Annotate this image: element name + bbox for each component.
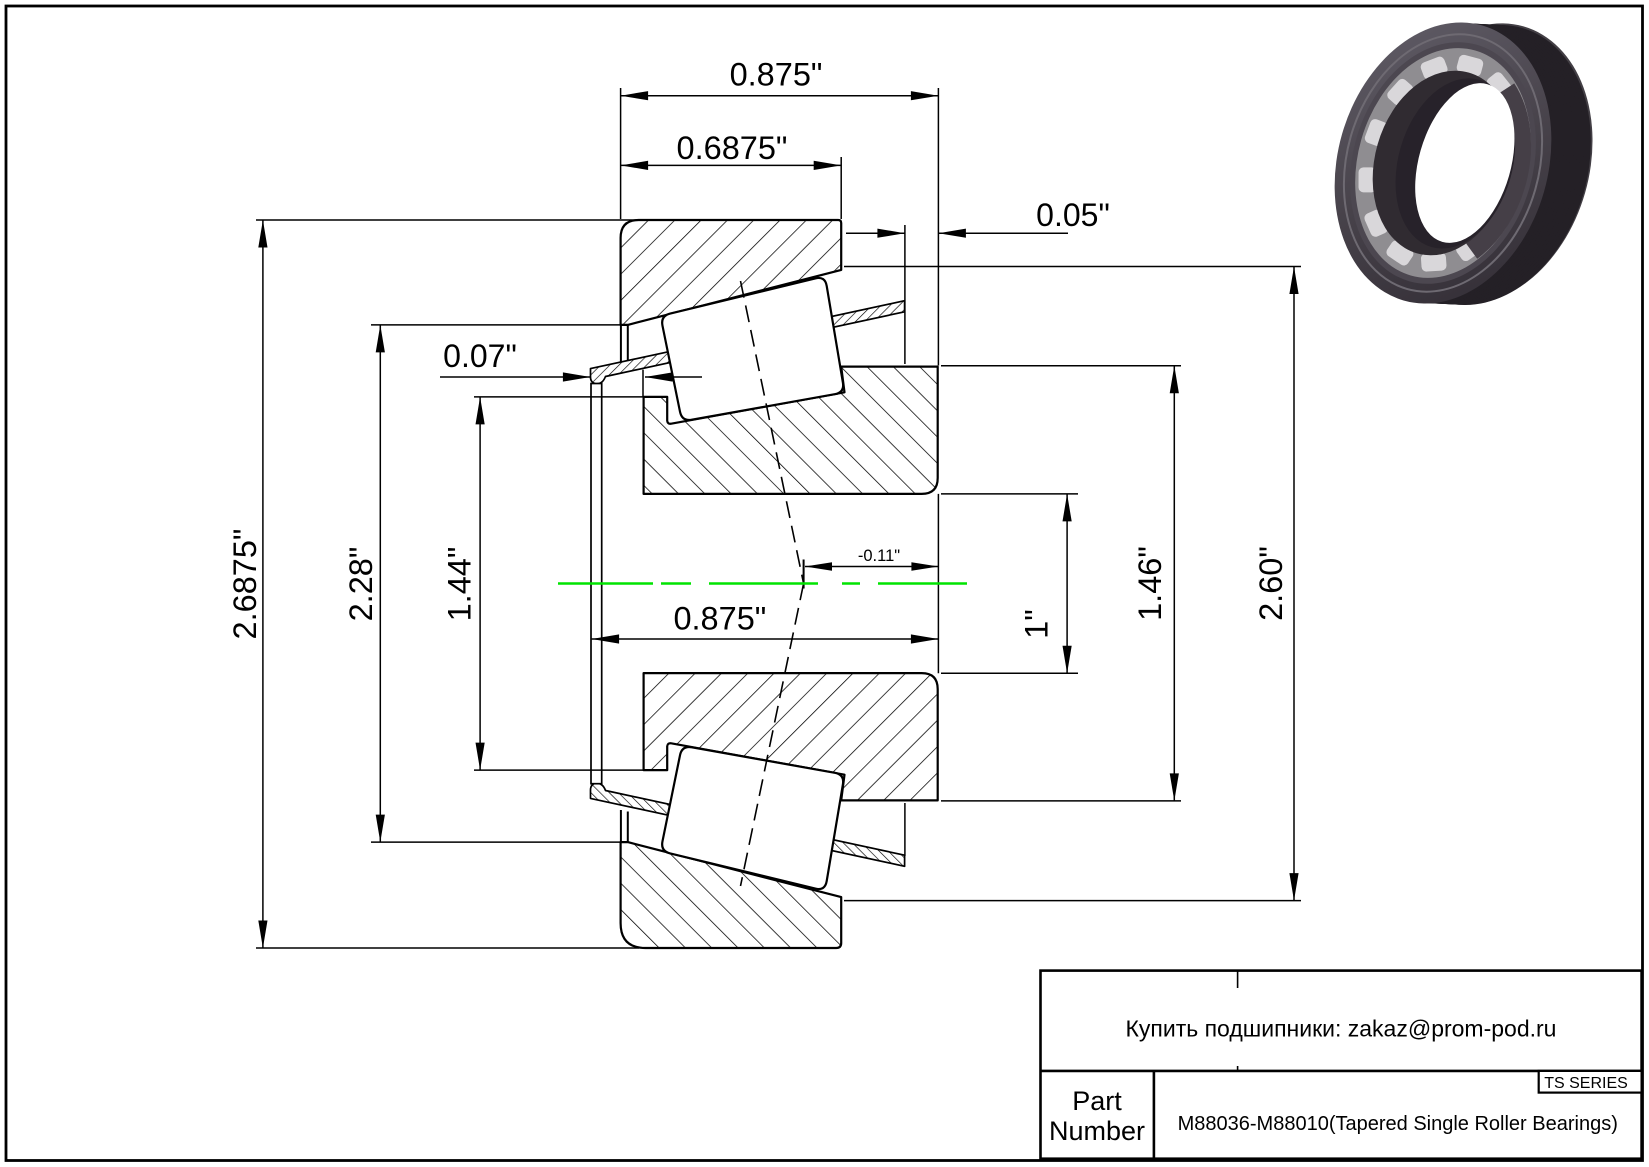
svg-text:1.46": 1.46" (1132, 546, 1168, 621)
svg-text:M88036-M88010(Tapered Single R: M88036-M88010(Tapered Single Roller Bear… (1178, 1113, 1618, 1135)
svg-text:0.07": 0.07" (443, 338, 517, 374)
svg-text:0.6875": 0.6875" (677, 130, 788, 166)
svg-text:-0.11": -0.11" (858, 547, 900, 565)
svg-text:TS SERIES: TS SERIES (1544, 1075, 1628, 1092)
svg-text:0.05": 0.05" (1036, 197, 1110, 233)
svg-text:Купить подшипники: zakaz@prom-: Купить подшипники: zakaz@prom-pod.ru (1126, 1016, 1557, 1042)
svg-text:1": 1" (1019, 609, 1055, 639)
svg-text:0.875": 0.875" (730, 57, 823, 93)
svg-text:1.44": 1.44" (442, 547, 478, 622)
svg-text:2.6875": 2.6875" (227, 529, 263, 640)
svg-text:2.28": 2.28" (343, 547, 379, 622)
svg-text:0.875": 0.875" (673, 600, 766, 636)
svg-text:2.60": 2.60" (1253, 546, 1289, 621)
svg-text:Part: Part (1072, 1086, 1122, 1116)
svg-text:Number: Number (1049, 1116, 1145, 1146)
